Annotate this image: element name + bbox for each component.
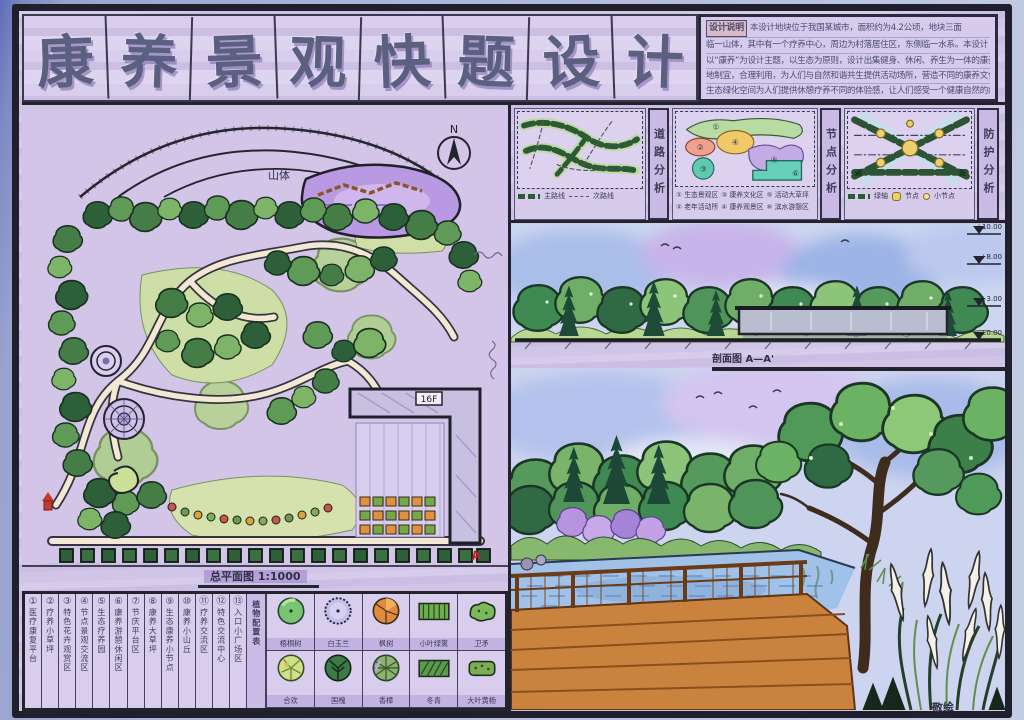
plant-cell: 国槐 — [314, 651, 362, 708]
design-notes: 设计说明本设计地块位于我国某城市，面积约为4.2公顷，地块三面 临一山体，其中有… — [698, 14, 998, 102]
node-badge: ⑤ — [771, 156, 778, 165]
node-legend-row-1: ① 生态景观区 ③ 康养文化区 ⑤ 活动大草坪 — [675, 187, 815, 199]
plant-symbol-round-tree — [273, 596, 309, 628]
legend-column: ①医疗康复平台 — [25, 594, 42, 708]
legend-column: ⑧康养大草坪 — [145, 594, 162, 708]
legend-column: ⑤生态疗养园 — [93, 594, 110, 708]
divider-under-analysis — [511, 220, 1005, 223]
notes-heading: 设计说明 — [706, 20, 747, 37]
node-label: 节点 — [905, 191, 919, 201]
mountain-label: 山体 — [268, 168, 290, 182]
legend-column: ⑥康养游憩休闲区 — [110, 594, 127, 708]
legend-column: ④节点景观交流区 — [76, 594, 93, 708]
node-badge: ④ — [732, 138, 739, 147]
plant-cell: 白玉兰 — [314, 594, 362, 651]
north-label: N — [450, 123, 458, 136]
legend-column: ②疗养小草坪 — [42, 594, 59, 708]
title-char: 养 — [107, 15, 194, 101]
title-char: 景 — [191, 15, 278, 102]
node-analysis-label: 节点分析 — [820, 108, 841, 220]
plant-cell: 合欢 — [266, 651, 314, 708]
title-char: 快 — [360, 15, 447, 102]
road-analysis-diagram: 主路线 次路线 — [514, 108, 646, 220]
plant-symbol-serrated-tree — [320, 596, 356, 628]
plant-symbol-pagoda-tree — [320, 653, 356, 685]
street-tree-row — [60, 549, 490, 562]
plant-symbol-hedge — [416, 596, 452, 628]
notes-line: 地制宜，合理利用，为人们与自然和谐共生提供活动场所，营造不同的康养文化， — [706, 69, 990, 84]
design-board-photo: 康 养 景 观 快 题 设 计 设计说明本设计地块位于我国某城市，面积约为4.2… — [0, 0, 1024, 720]
node-legend-item: ⑥ 滨水游憩区 — [767, 201, 809, 211]
title-char: 康 — [23, 15, 110, 102]
perspective-drawing — [511, 368, 1005, 710]
node-badge: ⑥ — [792, 169, 799, 178]
ground-hatch — [525, 342, 971, 349]
plant-symbol-boxwood — [464, 653, 500, 685]
legend-column: ⑩康养小山丘 — [179, 594, 196, 708]
road-analysis-drawing — [518, 112, 643, 186]
elevation-mark: ±0.00 — [950, 329, 1002, 337]
node-badge: ③ — [700, 164, 707, 173]
elevation-mark: +10.00 — [950, 223, 1002, 231]
notes-line: 临一山体，其中有一个疗养中心，周边为村落居住区，东侧临一水系。本设计 — [706, 38, 990, 53]
node-legend-item: ③ 康养文化区 — [721, 189, 763, 199]
plant-cell: 卫矛 — [457, 594, 505, 651]
legend-column: ⑫特色交流中心 — [213, 594, 230, 708]
plant-symbol-pie-tree — [368, 596, 404, 628]
section-caption: 剖面图 A—A' — [712, 350, 1005, 371]
plants-table-header: 植物配置表 — [247, 594, 266, 708]
title-char: 题 — [444, 15, 531, 101]
node-badge: ① — [712, 123, 719, 132]
title-char: 计 — [613, 15, 698, 101]
title-char: 设 — [528, 15, 615, 102]
pavilion — [735, 308, 951, 340]
protection-legend: 绿轴 节点 小节点 — [847, 189, 972, 201]
small-node-label: 小节点 — [934, 191, 955, 201]
green-axis-label: 绿轴 — [874, 191, 888, 201]
legend-column: ⑬入口小广场区 — [230, 594, 247, 708]
node-analysis-drawing: ① ② ③ ④ ⑤ ⑥ — [676, 112, 816, 184]
protection-analysis-label: 防护分析 — [977, 108, 999, 220]
title-row: 康 养 景 观 快 题 设 计 — [22, 14, 698, 102]
protection-analysis-drawing — [848, 112, 973, 186]
elevation-mark: +8.00 — [950, 253, 1002, 261]
building-label: 16F — [421, 395, 438, 405]
secondary-road-label: 次路线 — [593, 191, 614, 201]
plant-symbol-mimosa — [273, 653, 309, 685]
legend-table: ①医疗康复平台 ②疗养小草坪 ③特色花卉观赏区 ④节点景观交流区 ⑤生态疗养园 … — [22, 591, 508, 711]
plant-symbol-shrub-blob — [464, 596, 500, 628]
node-swatch — [892, 192, 901, 201]
secondary-road-swatch — [569, 196, 589, 197]
building: 16F — [350, 389, 480, 543]
legend-column: ⑪疗养交流区 — [196, 594, 213, 708]
legend-column: ③特色花卉观赏区 — [59, 594, 76, 708]
plant-cell: 梧桐树 — [266, 594, 314, 651]
legend-column: ⑨生态康养小节点 — [162, 594, 179, 708]
notes-line: 生态绿化空间为人们提供休憩疗养不同的体验感，让人们感受一个健康自然的疗养环境。 — [706, 84, 990, 99]
notes-line: 本设计地块位于我国某城市，面积约为4.2公顷，地块三面 — [750, 23, 962, 33]
node-legend-item: ① 生态景观区 — [676, 189, 718, 199]
section-drawing — [511, 224, 1005, 352]
protection-analysis-diagram: 绿轴 节点 小节点 — [844, 108, 975, 220]
master-plan: 山体 N — [22, 105, 508, 563]
plant-symbol-camphor — [368, 653, 404, 685]
primary-road-label: 主路线 — [544, 191, 565, 201]
small-node-swatch — [923, 193, 930, 200]
artist-signature: 敬绘 — [932, 698, 955, 715]
notes-line: 以“康养”为设计主题，以生态为原则，设计出集健身、休闲、养生为一体的康养场所，因 — [706, 54, 990, 69]
plant-cell: 枫树 — [362, 594, 410, 651]
plant-cell: 大叶黄杨 — [457, 651, 505, 708]
legend-column: ⑦节庆平台区 — [128, 594, 145, 708]
elevation-mark: +3.00 — [950, 295, 1002, 303]
plant-symbol-holly-hedge — [416, 653, 452, 685]
plant-cell: 冬青 — [409, 651, 457, 708]
primary-road-swatch — [518, 194, 540, 199]
node-legend-row-2: ② 老年活动所 ④ 康养观景区 ⑥ 滨水游憩区 — [675, 199, 815, 211]
green-axis-swatch — [848, 194, 870, 199]
node-badge: ② — [697, 143, 704, 152]
node-legend-item: ② 老年活动所 — [676, 201, 718, 211]
node-legend-item: ⑤ 活动大草坪 — [767, 189, 809, 199]
node-legend-item: ④ 康养观景区 — [721, 201, 763, 211]
node-analysis-diagram: ① ② ③ ④ ⑤ ⑥ ① 生态景观区 ③ 康养文化区 ⑤ 活动大草坪 ② 老年… — [672, 108, 818, 220]
plant-cell: 香樟 — [362, 651, 410, 708]
road-legend: 主路线 次路线 — [517, 189, 643, 201]
plants-table: 梧桐树 白玉兰 枫树 小叶绿篱 卫矛 合欢 国槐 香樟 — [266, 594, 505, 708]
road-analysis-label: 道路分析 — [648, 108, 669, 220]
title-char: 观 — [276, 15, 363, 101]
plan-bottom-rule — [22, 565, 508, 567]
plant-cell: 小叶绿篱 — [409, 594, 457, 651]
plan-caption: 总平面图 1:1000 — [198, 568, 319, 588]
